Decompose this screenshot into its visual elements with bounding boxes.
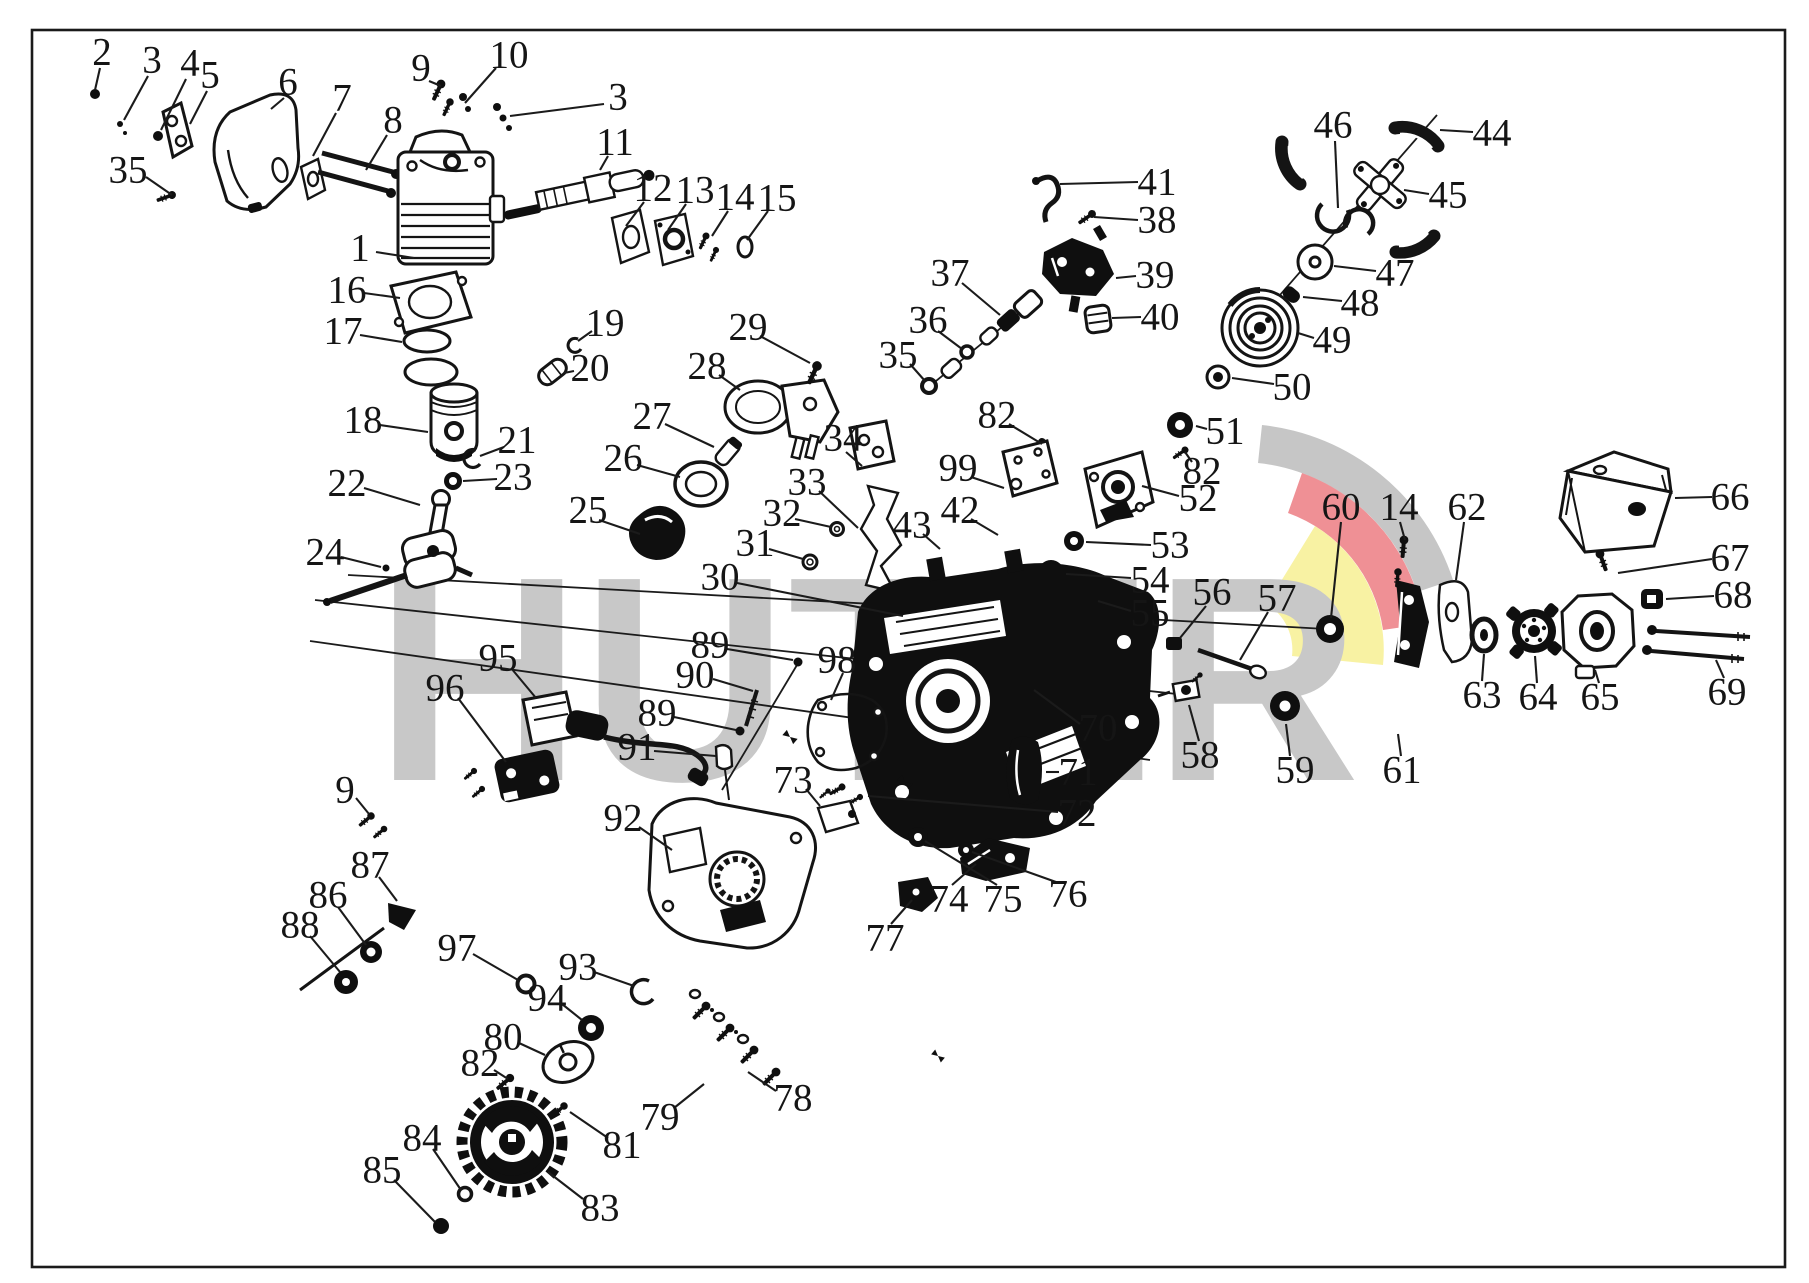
part-label-29: 29 — [729, 306, 768, 349]
part-label-83: 83 — [581, 1187, 620, 1230]
part-label-46: 46 — [1314, 104, 1353, 147]
leader-line-67 — [1618, 559, 1712, 573]
part-label-68: 68 — [1714, 574, 1753, 617]
part-label-42: 42 — [941, 489, 980, 532]
part-label-74: 74 — [930, 878, 969, 921]
part-label-87: 87 — [351, 844, 390, 887]
leader-line-68 — [1666, 596, 1714, 599]
part-label-39: 39 — [1136, 254, 1175, 297]
part-label-71: 71 — [1059, 751, 1098, 794]
part-label-66: 66 — [1711, 476, 1750, 519]
part-label-61: 61 — [1383, 749, 1422, 792]
part-screws-14-oring-15 — [697, 231, 752, 262]
part-label-30: 30 — [701, 556, 740, 599]
part-label-64: 64 — [1519, 676, 1558, 719]
leader-line-22 — [364, 488, 420, 505]
part-label-40: 40 — [1141, 296, 1180, 339]
part-label-98: 98 — [818, 639, 857, 682]
part-label-18: 18 — [344, 399, 383, 442]
part-label-38: 38 — [1138, 199, 1177, 242]
part-label-97: 97 — [438, 927, 477, 970]
part-label-59: 59 — [1276, 749, 1315, 792]
part-label-1: 1 — [350, 227, 370, 270]
part-label-34: 34 — [824, 417, 863, 460]
part-piston-rings-17 — [404, 330, 457, 385]
part-label-28: 28 — [688, 345, 727, 388]
leader-line-18 — [380, 425, 428, 432]
leader-line-38 — [1094, 217, 1138, 220]
leader-line-97 — [473, 954, 518, 980]
part-cylinder-1 — [398, 131, 504, 264]
part-label-5: 5 — [200, 54, 220, 97]
leader-line-44 — [1440, 130, 1473, 132]
part-label-78: 78 — [774, 1077, 813, 1120]
part-muffler-bracket-5 — [163, 103, 192, 157]
part-label-73: 73 — [774, 759, 813, 802]
part-crankcase-half-92 — [649, 799, 815, 948]
part-label-17: 17 — [324, 310, 363, 353]
part-label-16: 16 — [328, 269, 367, 312]
part-label-9b: 9 — [335, 769, 355, 812]
part-cylinder-screws-9-10-3 — [429, 78, 512, 131]
parts-diagram-canvas: HUTER — [0, 0, 1809, 1283]
part-label-55: 55 — [1131, 592, 1170, 635]
part-label-44: 44 — [1473, 112, 1512, 155]
leader-line-39 — [1116, 276, 1136, 278]
part-label-85: 85 — [363, 1149, 402, 1192]
part-label-14b: 14 — [1380, 486, 1419, 529]
part-label-91: 91 — [618, 726, 657, 769]
part-label-20: 20 — [571, 347, 610, 390]
part-label-25: 25 — [569, 489, 608, 532]
leader-line-83 — [548, 1172, 583, 1199]
part-label-76: 76 — [1049, 873, 1088, 916]
part-clutch-shoes-44-45-46 — [1282, 127, 1438, 252]
part-case-screw-set-78-79 — [690, 990, 945, 1088]
part-throttle-rod-41 — [1032, 177, 1059, 222]
part-oil-tank-66 — [1560, 452, 1671, 552]
exploded-parts-diagram-page: HUTER — [0, 0, 1809, 1283]
part-label-92: 92 — [604, 797, 643, 840]
part-label-33: 33 — [788, 461, 827, 504]
leader-line-3b — [510, 104, 604, 116]
leader-line-48 — [1303, 297, 1342, 301]
part-label-65: 65 — [1581, 676, 1620, 719]
leader-line-66 — [1675, 497, 1712, 498]
part-label-14a: 14 — [716, 176, 755, 219]
part-flywheel-83-84-85 — [433, 1092, 562, 1234]
part-label-45: 45 — [1429, 174, 1468, 217]
part-label-58: 58 — [1181, 734, 1220, 777]
part-label-8: 8 — [383, 99, 403, 142]
part-label-36: 36 — [909, 299, 948, 342]
part-oil-pump-housing-65 — [1562, 594, 1634, 678]
part-label-4: 4 — [180, 42, 200, 85]
part-label-26: 26 — [604, 437, 643, 480]
part-label-9a: 9 — [411, 47, 431, 90]
part-label-37: 37 — [931, 252, 970, 295]
leader-line-47 — [1334, 266, 1376, 271]
leader-line-46 — [1335, 141, 1338, 208]
part-label-47: 47 — [1376, 252, 1415, 295]
part-label-56: 56 — [1193, 571, 1232, 614]
part-label-23: 23 — [494, 456, 533, 499]
part-label-3a: 3 — [142, 39, 162, 82]
leader-line-26 — [637, 465, 680, 477]
part-oil-pump-gear-64 — [1505, 602, 1563, 660]
part-label-70: 70 — [1079, 707, 1118, 750]
part-label-35a: 35 — [109, 149, 148, 192]
leader-line-3a — [124, 76, 148, 120]
part-label-57: 57 — [1258, 577, 1297, 620]
part-label-6: 6 — [278, 61, 298, 104]
part-label-41: 41 — [1138, 161, 1177, 204]
part-intake-gaskets-12-13 — [612, 210, 693, 265]
leader-line-50 — [1232, 378, 1274, 384]
part-label-50: 50 — [1273, 366, 1312, 409]
part-label-49: 49 — [1313, 319, 1352, 362]
part-label-69: 69 — [1708, 671, 1747, 714]
part-label-13: 13 — [676, 169, 715, 212]
part-label-84: 84 — [403, 1117, 442, 1160]
part-label-88: 88 — [281, 904, 320, 947]
part-label-82c: 82 — [461, 1042, 500, 1085]
part-label-72: 72 — [1058, 792, 1097, 835]
leader-line-29 — [760, 336, 810, 363]
part-muffler-bolts-8 — [318, 153, 401, 198]
part-label-7: 7 — [332, 77, 352, 120]
part-chain-catcher-99-82 — [1003, 436, 1057, 496]
leader-line-80 — [519, 1043, 545, 1055]
part-label-77: 77 — [866, 917, 905, 960]
part-label-81: 81 — [603, 1124, 642, 1167]
part-gasket-62-seal-63 — [1439, 581, 1496, 662]
part-label-3b: 3 — [608, 76, 628, 119]
part-label-52: 52 — [1179, 477, 1218, 520]
part-label-24: 24 — [306, 531, 345, 574]
leader-line-93 — [594, 972, 634, 986]
part-cylinder-gasket-16 — [391, 272, 471, 333]
part-muffler-cover-6 — [214, 94, 299, 214]
part-label-22: 22 — [328, 462, 367, 505]
part-label-79: 79 — [641, 1096, 680, 1139]
leader-line-45 — [1404, 190, 1429, 194]
leader-line-41 — [1060, 182, 1138, 184]
part-label-51: 51 — [1206, 410, 1245, 453]
part-label-10: 10 — [490, 34, 529, 77]
part-ring-26-choke-27 — [675, 435, 743, 506]
part-label-95: 95 — [479, 637, 518, 680]
part-label-12: 12 — [634, 167, 673, 210]
part-label-82a: 82 — [978, 394, 1017, 437]
leader-line-23 — [463, 479, 497, 481]
leader-line-35a — [146, 177, 172, 195]
part-label-43: 43 — [893, 504, 932, 547]
part-label-62: 62 — [1448, 486, 1487, 529]
part-muffler-gasket-7 — [301, 159, 325, 199]
part-label-63: 63 — [1463, 674, 1502, 717]
leader-line-62 — [1456, 522, 1464, 580]
part-label-96: 96 — [426, 667, 465, 710]
part-carb-bracket-39-38-40 — [1042, 208, 1114, 333]
part-air-filter-28-29 — [725, 360, 838, 459]
part-label-27: 27 — [633, 395, 672, 438]
leader-line-9b — [356, 798, 369, 814]
part-label-90: 90 — [676, 654, 715, 697]
leader-line-17 — [360, 335, 402, 342]
part-label-15: 15 — [758, 177, 797, 220]
leader-line-40 — [1112, 317, 1141, 318]
part-label-94: 94 — [528, 977, 567, 1020]
leader-line-27 — [665, 424, 714, 447]
part-label-19: 19 — [586, 302, 625, 345]
part-label-75: 75 — [984, 878, 1023, 921]
part-label-11: 11 — [596, 121, 634, 164]
part-label-2: 2 — [92, 31, 112, 74]
part-label-99: 99 — [939, 447, 978, 490]
part-label-60: 60 — [1322, 486, 1361, 529]
